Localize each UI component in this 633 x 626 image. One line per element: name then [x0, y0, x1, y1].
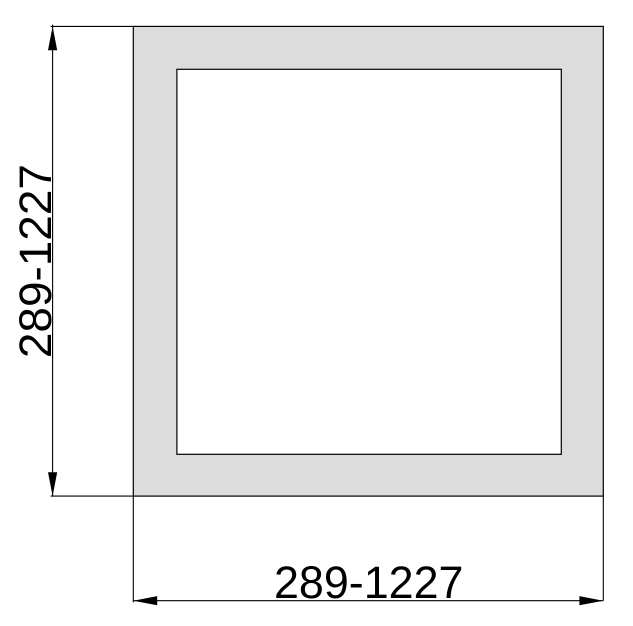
svg-text:289-1227: 289-1227 [274, 557, 464, 608]
svg-text:289-1227: 289-1227 [10, 164, 61, 358]
